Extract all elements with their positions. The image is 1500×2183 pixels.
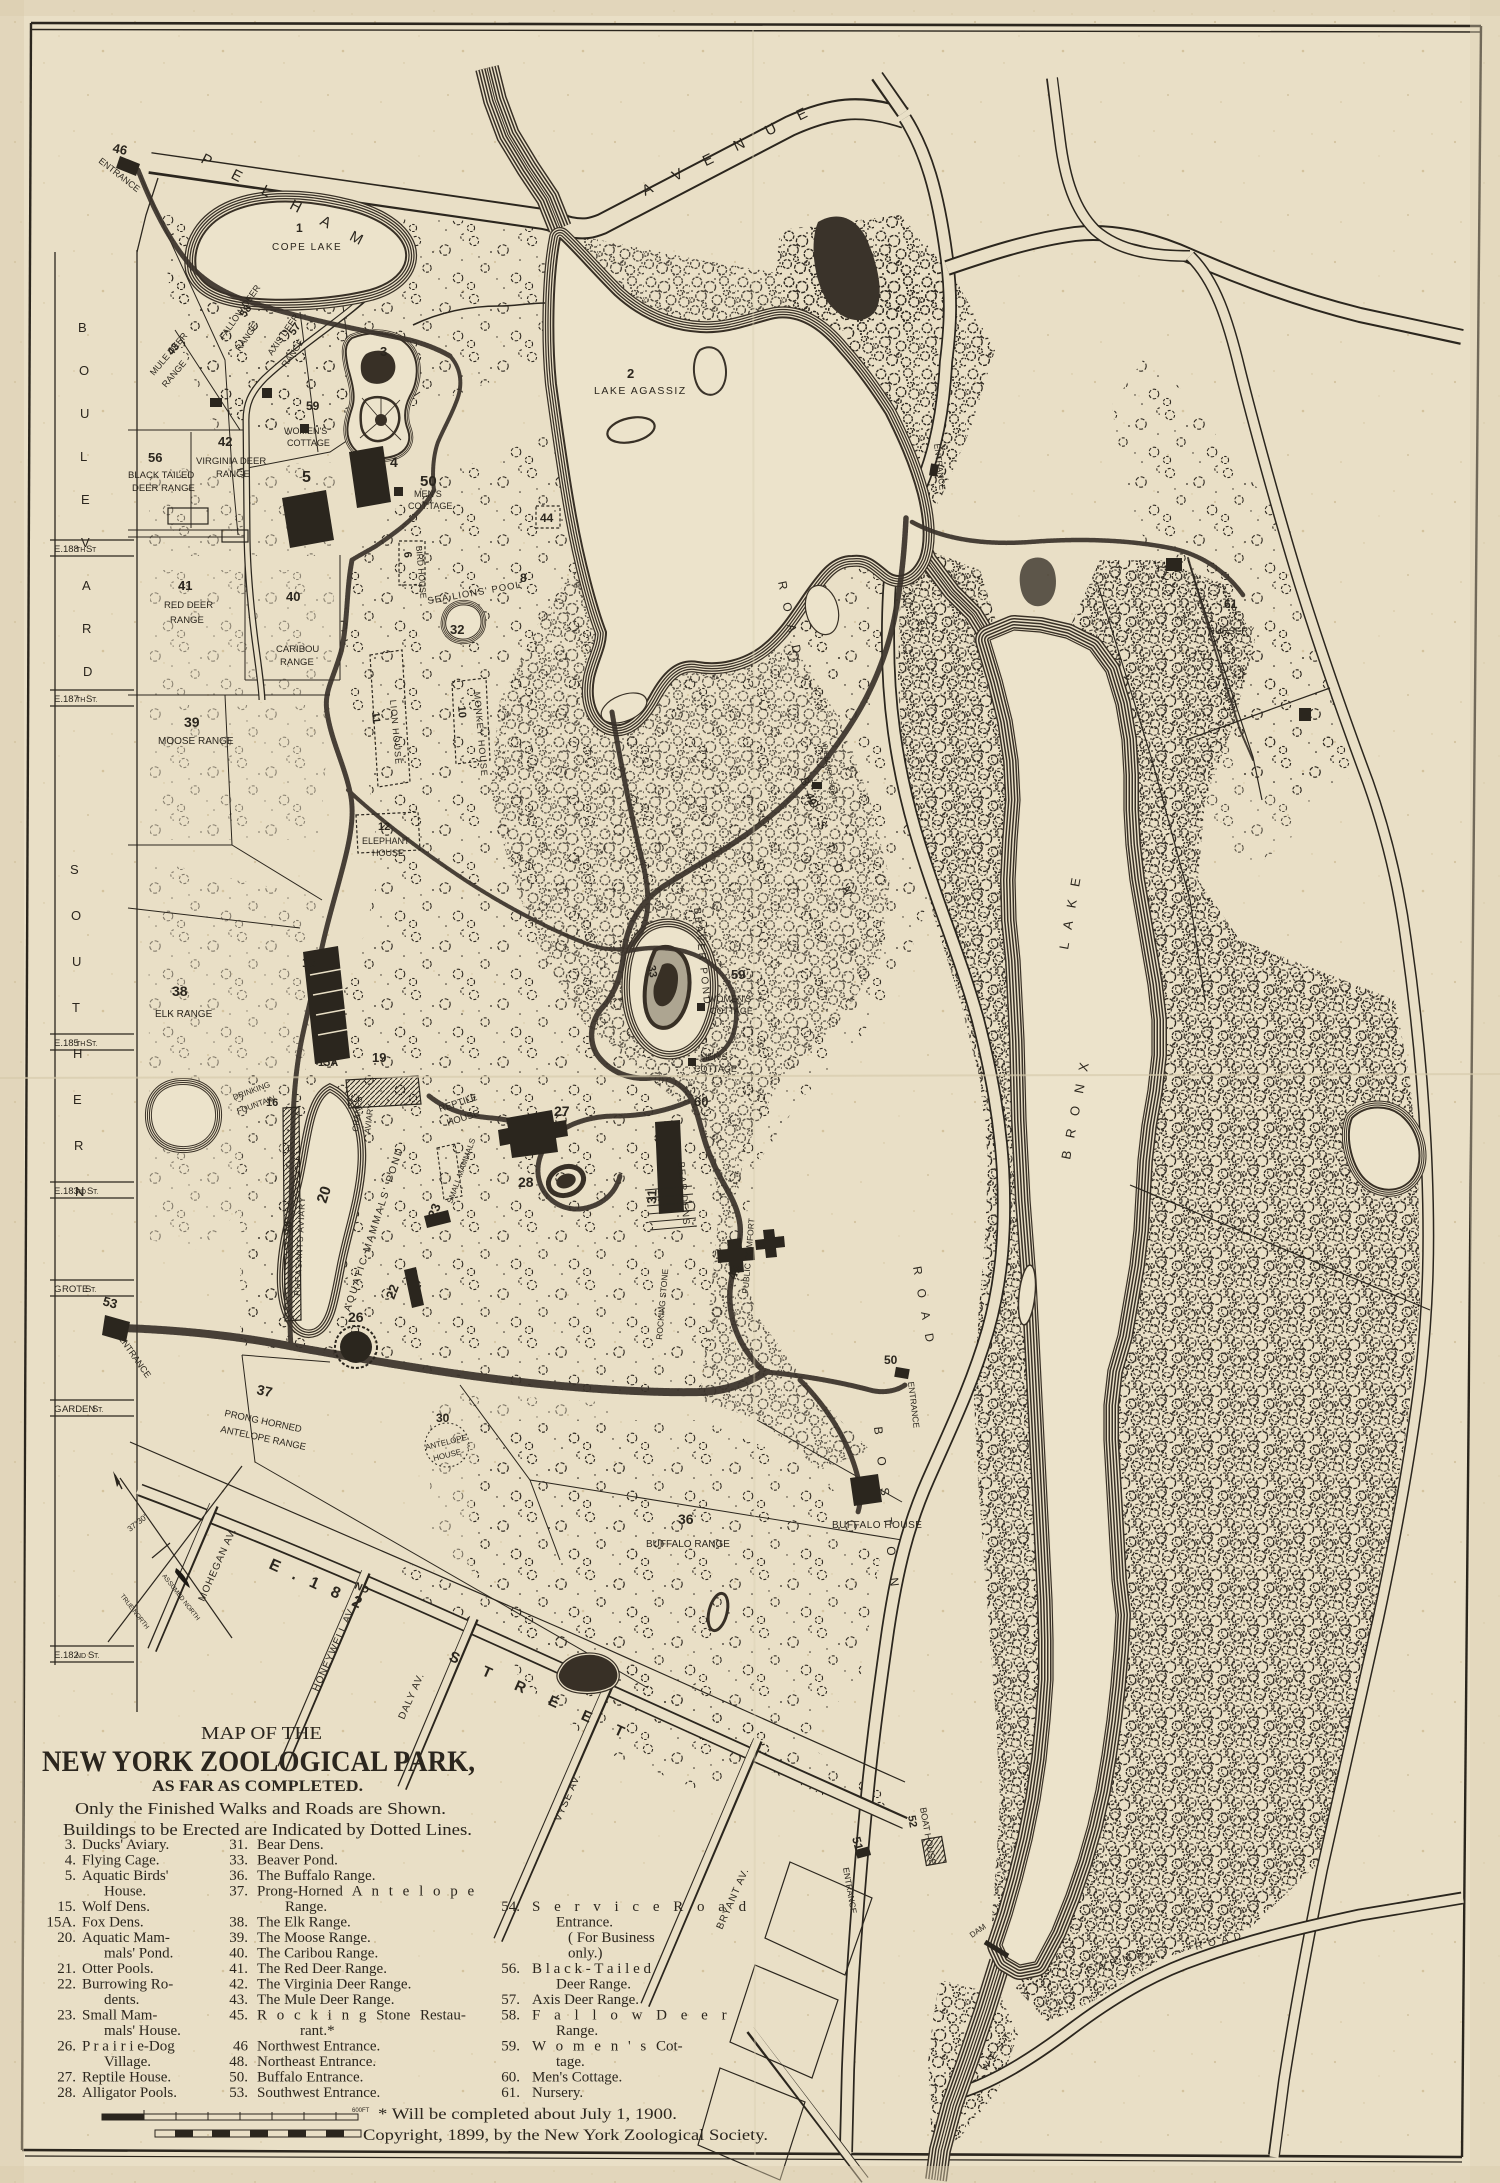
svg-text:60: 60 <box>694 1094 708 1109</box>
svg-text:28: 28 <box>518 1174 534 1190</box>
svg-text:4: 4 <box>390 454 398 470</box>
svg-text:26.: 26. <box>57 2039 76 2055</box>
svg-text:LAKE AGASSIZ: LAKE AGASSIZ <box>594 385 687 397</box>
svg-text:COTTAGE: COTTAGE <box>694 1064 737 1074</box>
svg-text:50: 50 <box>420 473 437 490</box>
svg-text:W o m e n ' s Cot-: W o m e n ' s Cot- <box>532 2039 683 2055</box>
svg-text:Aquatic Mam-: Aquatic Mam- <box>82 1930 170 1946</box>
svg-text:27.: 27. <box>57 2070 76 2086</box>
svg-text:54.: 54. <box>501 1899 520 1915</box>
svg-text:53.: 53. <box>229 2085 248 2101</box>
svg-text:2: 2 <box>627 366 634 381</box>
svg-text:tage.: tage. <box>556 2054 585 2070</box>
svg-text:S: S <box>70 862 79 877</box>
svg-text:5: 5 <box>302 469 311 486</box>
svg-text:23.: 23. <box>57 2008 76 2024</box>
svg-text:BUFFALO RANGE: BUFFALO RANGE <box>646 1539 730 1550</box>
svg-text:T.: T. <box>91 1287 97 1294</box>
svg-text:Northeast Entrance.: Northeast Entrance. <box>257 2054 376 2070</box>
svg-text:* Will be completed about July: * Will be completed about July 1, 1900. <box>378 2106 677 2123</box>
svg-text:38.: 38. <box>229 1915 248 1931</box>
svg-text:40: 40 <box>286 589 300 604</box>
svg-text:AS FAR AS COMPLETED.: AS FAR AS COMPLETED. <box>152 1778 363 1795</box>
svg-text:21.: 21. <box>57 1961 76 1977</box>
svg-text:50.: 50. <box>229 2070 248 2086</box>
svg-text:dents.: dents. <box>104 1992 139 2008</box>
svg-text:33.: 33. <box>229 1853 248 1869</box>
svg-text:COT.TAGE: COT.TAGE <box>408 501 452 511</box>
svg-text:Men's Cottage.: Men's Cottage. <box>532 2070 622 2086</box>
svg-text:32: 32 <box>450 622 464 637</box>
svg-text:42: 42 <box>218 434 232 449</box>
svg-text:ARDEN: ARDEN <box>62 1404 95 1415</box>
svg-text:The Elk Range.: The Elk Range. <box>257 1915 351 1931</box>
svg-text:U: U <box>72 954 81 969</box>
svg-text:59: 59 <box>731 967 745 982</box>
svg-text:36: 36 <box>678 1511 694 1527</box>
svg-text:44: 44 <box>540 511 554 525</box>
svg-text:6: 6 <box>401 551 413 558</box>
svg-text:T: T <box>72 1000 80 1015</box>
svg-text:TH: TH <box>76 1041 85 1048</box>
svg-text:S e r v i c e R o a d: S e r v i c e R o a d <box>532 1899 747 1915</box>
svg-text:45.: 45. <box>229 2008 248 2024</box>
svg-text:MOOSE RANGE: MOOSE RANGE <box>158 736 234 747</box>
svg-text:20.: 20. <box>57 1930 76 1946</box>
svg-text:30: 30 <box>436 1411 450 1425</box>
svg-text:Village.: Village. <box>104 2054 151 2070</box>
svg-text:Otter Pools.: Otter Pools. <box>82 1961 154 1977</box>
svg-text:RED DEER: RED DEER <box>164 600 213 611</box>
svg-text:38: 38 <box>172 983 188 999</box>
svg-text:COPE LAKE: COPE LAKE <box>272 242 342 253</box>
svg-text:Copyright, 1899, by the New Yo: Copyright, 1899, by the New York Zoologi… <box>363 2127 768 2144</box>
svg-text:A: A <box>82 578 91 593</box>
svg-text:Alligator Pools.: Alligator Pools. <box>82 2085 177 2101</box>
svg-text:Only the Finished Walks and Ro: Only the Finished Walks and Roads are Sh… <box>75 1799 446 1818</box>
svg-text:ELK RANGE: ELK RANGE <box>155 1009 213 1020</box>
svg-text:mals' House.: mals' House. <box>104 2023 181 2039</box>
svg-text:57.: 57. <box>501 1992 520 2008</box>
svg-text:L: L <box>80 449 87 464</box>
svg-text:House.: House. <box>104 1884 146 1900</box>
svg-text:mals' Pond.: mals' Pond. <box>104 1946 173 1962</box>
svg-text:Range.: Range. <box>556 2023 598 2039</box>
svg-text:36.: 36. <box>229 1868 248 1884</box>
svg-text:Northwest Entrance.: Northwest Entrance. <box>257 2039 380 2055</box>
svg-text:Range.: Range. <box>285 1899 327 1915</box>
svg-text:VIRGINIA DEER: VIRGINIA DEER <box>196 456 266 467</box>
svg-text:RANGE: RANGE <box>216 469 250 480</box>
svg-text:59.: 59. <box>501 2039 520 2055</box>
svg-text:10: 10 <box>455 705 468 718</box>
svg-text:59: 59 <box>306 399 320 413</box>
svg-text:Entrance.: Entrance. <box>556 1915 613 1931</box>
svg-text:RANGE: RANGE <box>280 657 314 668</box>
svg-text:61.: 61. <box>501 2085 520 2101</box>
svg-text:50: 50 <box>884 1353 898 1367</box>
svg-text:48.: 48. <box>229 2054 248 2070</box>
svg-text:Wolf Dens.: Wolf Dens. <box>82 1899 150 1915</box>
svg-text:Reptile House.: Reptile House. <box>82 2070 171 2086</box>
svg-text:11: 11 <box>369 711 382 724</box>
svg-text:12: 12 <box>378 821 390 833</box>
svg-text:56.: 56. <box>501 1961 520 1977</box>
svg-text:MEN'S: MEN'S <box>700 1052 728 1062</box>
svg-text:T.: T. <box>98 1407 104 1414</box>
svg-text:HOUSE: HOUSE <box>372 848 404 858</box>
svg-text:G: G <box>54 1284 61 1295</box>
svg-text:39: 39 <box>184 714 200 730</box>
svg-text:39.: 39. <box>229 1930 248 1946</box>
svg-text:Nursery.: Nursery. <box>532 2085 583 2101</box>
svg-text:3: 3 <box>380 344 387 359</box>
svg-text:ELEPHANT: ELEPHANT <box>362 836 410 846</box>
svg-text:Flying Cage.: Flying Cage. <box>82 1853 160 1869</box>
svg-text:RD: RD <box>76 1189 86 1196</box>
svg-text:43.: 43. <box>229 1992 248 2008</box>
svg-text:31.: 31. <box>229 1837 248 1853</box>
svg-text:15A: 15A <box>318 1057 338 1069</box>
svg-text:600FT: 600FT <box>352 2108 370 2114</box>
svg-text:15: 15 <box>302 955 316 970</box>
svg-text:The Caribou Range.: The Caribou Range. <box>257 1946 378 1962</box>
svg-text:Southwest Entrance.: Southwest Entrance. <box>257 2085 380 2101</box>
svg-text:46: 46 <box>111 140 128 158</box>
svg-text:52: 52 <box>905 1814 919 1828</box>
svg-text:WOMEN'S: WOMEN'S <box>708 994 751 1004</box>
svg-text:E: E <box>81 492 90 507</box>
svg-text:CARIBOU: CARIBOU <box>276 644 319 655</box>
svg-text:TH: TH <box>76 547 85 554</box>
svg-text:D: D <box>83 664 92 679</box>
svg-text:31: 31 <box>644 1189 659 1204</box>
svg-text:58.: 58. <box>501 2008 520 2024</box>
svg-text:41.: 41. <box>229 1961 248 1977</box>
svg-text:COTTAGE: COTTAGE <box>287 438 330 448</box>
svg-text:Bear Dens.: Bear Dens. <box>257 1837 324 1853</box>
svg-text:60.: 60. <box>501 2070 520 2086</box>
svg-text:( For Business: ( For Business <box>568 1930 655 1946</box>
svg-text:42.: 42. <box>229 1977 248 1993</box>
svg-text:Fox Dens.: Fox Dens. <box>82 1915 144 1931</box>
svg-text:G: G <box>54 1404 61 1415</box>
svg-text:ND: ND <box>76 1653 86 1660</box>
svg-text:COTTAGE: COTTAGE <box>710 1006 753 1016</box>
svg-text:BLACK TAILED: BLACK TAILED <box>128 470 194 481</box>
svg-text:B: B <box>78 320 87 335</box>
svg-text:R: R <box>82 621 91 636</box>
svg-text:The Virginia Deer Range.: The Virginia Deer Range. <box>257 1977 411 1993</box>
svg-text:O: O <box>79 363 89 378</box>
svg-text:Small Mam-: Small Mam- <box>82 2008 157 2024</box>
svg-text:Ducks' Aviary.: Ducks' Aviary. <box>82 1837 169 1853</box>
svg-text:T.: T. <box>92 1041 98 1048</box>
svg-text:T.: T. <box>93 1189 99 1196</box>
svg-text:O: O <box>71 908 81 923</box>
svg-text:R o c k i n g Stone Restau-: R o c k i n g Stone Restau- <box>257 2008 466 2024</box>
svg-text:40.: 40. <box>229 1946 248 1962</box>
svg-text:46: 46 <box>233 2039 249 2055</box>
svg-text:The Mule Deer Range.: The Mule Deer Range. <box>257 1992 394 2008</box>
svg-text:MAP OF THE: MAP OF THE <box>201 1723 322 1743</box>
svg-text:3.: 3. <box>65 1837 76 1853</box>
svg-text:The Moose Range.: The Moose Range. <box>257 1930 371 1946</box>
svg-text:Burrowing Ro-: Burrowing Ro- <box>82 1977 173 1993</box>
svg-text:only.): only.) <box>568 1946 602 1962</box>
svg-text:WOMEN'S: WOMEN'S <box>284 426 327 436</box>
svg-text:E: E <box>73 1092 82 1107</box>
svg-text:5.: 5. <box>65 1868 76 1884</box>
svg-text:15A.: 15A. <box>46 1915 76 1931</box>
svg-text:4.: 4. <box>65 1853 76 1869</box>
svg-text:T.: T. <box>92 697 98 704</box>
svg-text:T: T <box>92 547 97 554</box>
svg-text:MEN'S: MEN'S <box>414 489 442 499</box>
svg-text:rant.*: rant.* <box>300 2023 335 2039</box>
svg-text:U: U <box>80 406 89 421</box>
svg-text:19: 19 <box>372 1050 386 1065</box>
svg-text:NEW YORK ZOOLOGICAL PARK,: NEW YORK ZOOLOGICAL PARK, <box>42 1745 475 1778</box>
svg-text:37.: 37. <box>229 1884 248 1900</box>
svg-text:P r a i r i e-Dog: P r a i r i e-Dog <box>82 2039 175 2055</box>
svg-text:Buffalo Entrance.: Buffalo Entrance. <box>257 2070 363 2086</box>
svg-text:27: 27 <box>554 1103 570 1119</box>
svg-text:Aquatic Birds': Aquatic Birds' <box>82 1868 169 1884</box>
svg-text:RANGE: RANGE <box>170 615 204 626</box>
svg-text:33: 33 <box>645 964 659 978</box>
svg-text:B l a c k - T a i l e d: B l a c k - T a i l e d <box>532 1961 652 1977</box>
svg-text:R: R <box>74 1138 83 1153</box>
svg-text:1: 1 <box>296 221 303 235</box>
svg-text:DEER RANGE: DEER RANGE <box>132 483 195 494</box>
svg-text:56: 56 <box>148 450 162 465</box>
svg-text:Prong-Horned A n t e l o p e: Prong-Horned A n t e l o p e <box>257 1884 474 1900</box>
svg-text:Axis Deer Range.: Axis Deer Range. <box>532 1992 639 2008</box>
svg-text:Beaver Pond.: Beaver Pond. <box>257 1853 338 1869</box>
svg-text:22.: 22. <box>57 1977 76 1993</box>
svg-text:26: 26 <box>348 1309 364 1325</box>
svg-text:BUFFALO HOUSE: BUFFALO HOUSE <box>832 1520 922 1531</box>
svg-text:TH: TH <box>76 697 85 704</box>
svg-text:15.: 15. <box>57 1899 76 1915</box>
svg-text:The Red Deer Range.: The Red Deer Range. <box>257 1961 387 1977</box>
svg-text:F a l l o w D e e r: F a l l o w D e e r <box>532 2008 727 2024</box>
svg-text:28.: 28. <box>57 2085 76 2101</box>
svg-text:The Buffalo Range.: The Buffalo Range. <box>257 1868 375 1884</box>
svg-text:Deer Range.: Deer Range. <box>556 1977 631 1993</box>
svg-text:18: 18 <box>281 1220 295 1234</box>
svg-text:61: 61 <box>1224 597 1238 611</box>
svg-text:NURSERY: NURSERY <box>1208 626 1255 637</box>
svg-text:T.: T. <box>94 1653 100 1660</box>
svg-text:8: 8 <box>520 571 527 585</box>
svg-text:41: 41 <box>178 578 192 593</box>
